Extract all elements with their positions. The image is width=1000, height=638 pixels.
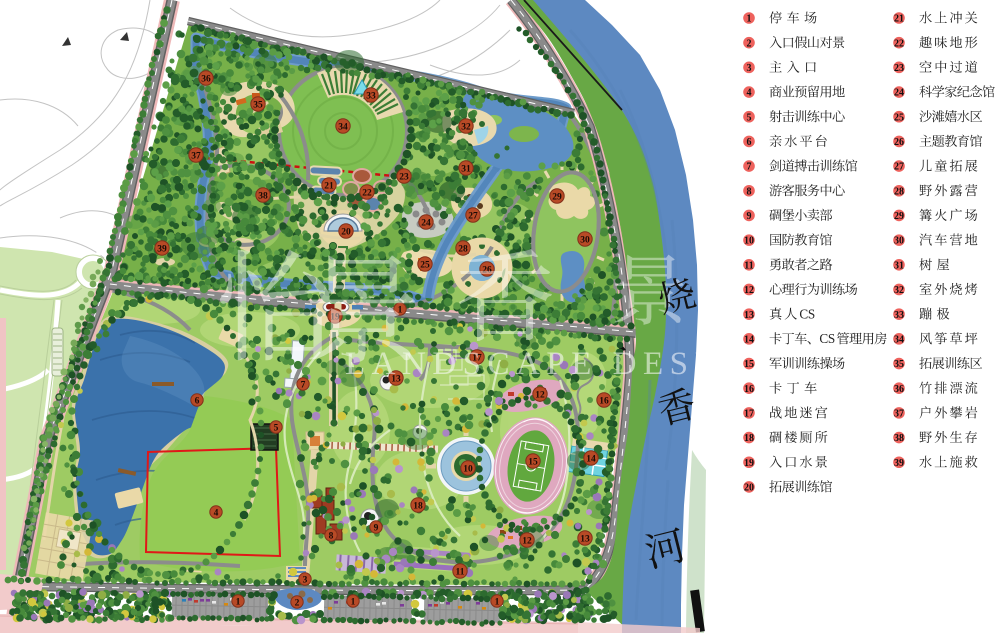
svg-text:3: 3 [303,575,308,585]
svg-text:37: 37 [191,151,201,161]
svg-text:4: 4 [747,88,752,99]
svg-text:16: 16 [744,384,754,395]
svg-text:1: 1 [495,597,500,607]
svg-text:27: 27 [468,211,478,221]
svg-text:22: 22 [362,188,372,198]
svg-text:9: 9 [747,211,752,222]
svg-text:1: 1 [747,14,752,25]
svg-text:7: 7 [747,162,752,173]
svg-text:2: 2 [295,598,300,608]
svg-text:18: 18 [744,433,754,444]
svg-text:5: 5 [274,423,279,433]
svg-text:12: 12 [522,536,532,546]
svg-text:33: 33 [894,310,904,321]
svg-text:35: 35 [894,359,904,370]
svg-text:9: 9 [374,523,379,533]
svg-text:6: 6 [195,396,200,406]
svg-text:28: 28 [894,186,904,197]
svg-text:23: 23 [894,63,904,74]
svg-text:16: 16 [599,396,609,406]
svg-text:36: 36 [201,74,211,84]
svg-text:38: 38 [258,191,268,201]
svg-text:LANDSCAPE DESIGN: LANDSCAPE DESIGN [345,346,773,382]
svg-text:15: 15 [528,457,538,467]
svg-text:19: 19 [744,458,754,469]
svg-text:24: 24 [421,218,431,228]
svg-text:14: 14 [586,454,596,464]
svg-text:17: 17 [744,408,754,419]
svg-text:35: 35 [253,100,263,110]
svg-text:27: 27 [894,162,904,173]
svg-text:13: 13 [744,310,754,321]
svg-text:2: 2 [747,38,752,49]
svg-text:4: 4 [214,508,219,518]
svg-text:36: 36 [894,384,904,395]
svg-text:13: 13 [580,534,590,544]
svg-text:8: 8 [747,186,752,197]
svg-text:25: 25 [894,112,904,123]
svg-text:10: 10 [463,464,473,474]
svg-text:32: 32 [894,285,904,296]
svg-text:29: 29 [552,192,562,202]
svg-text:7: 7 [301,380,306,390]
svg-text:8: 8 [329,531,334,541]
svg-text:22: 22 [894,38,904,49]
svg-text:11: 11 [744,260,753,271]
svg-text:26: 26 [894,137,904,148]
svg-text:10: 10 [744,236,754,247]
svg-text:33: 33 [366,91,376,101]
svg-text:38: 38 [894,433,904,444]
svg-text:30: 30 [580,235,590,245]
svg-text:S: S [808,306,815,321]
svg-text:12: 12 [744,285,754,296]
svg-text:21: 21 [324,181,334,191]
svg-text:20: 20 [744,483,754,494]
svg-text:3: 3 [747,63,752,74]
svg-text:30: 30 [894,236,904,247]
svg-text:11: 11 [456,567,465,577]
svg-text:14: 14 [744,334,754,345]
svg-text:23: 23 [399,172,409,182]
svg-text:24: 24 [894,88,904,99]
svg-text:12: 12 [535,390,545,400]
svg-text:21: 21 [894,14,904,25]
svg-text:25: 25 [420,260,430,270]
svg-text:29: 29 [894,211,904,222]
svg-text:15: 15 [744,359,754,370]
svg-text:1: 1 [351,597,356,607]
svg-text:S: S [828,331,835,346]
svg-text:31: 31 [894,260,904,271]
svg-text:39: 39 [894,458,904,469]
svg-text:31: 31 [461,164,471,174]
svg-text:32: 32 [461,122,471,132]
svg-text:20: 20 [341,227,351,237]
svg-text:5: 5 [747,112,752,123]
svg-text:34: 34 [338,122,348,132]
svg-text:34: 34 [894,334,904,345]
svg-text:37: 37 [894,408,904,419]
svg-text:6: 6 [747,137,752,148]
svg-text:1: 1 [236,597,241,607]
svg-text:39: 39 [157,244,167,254]
svg-text:28: 28 [458,244,468,254]
svg-text:18: 18 [413,501,423,511]
